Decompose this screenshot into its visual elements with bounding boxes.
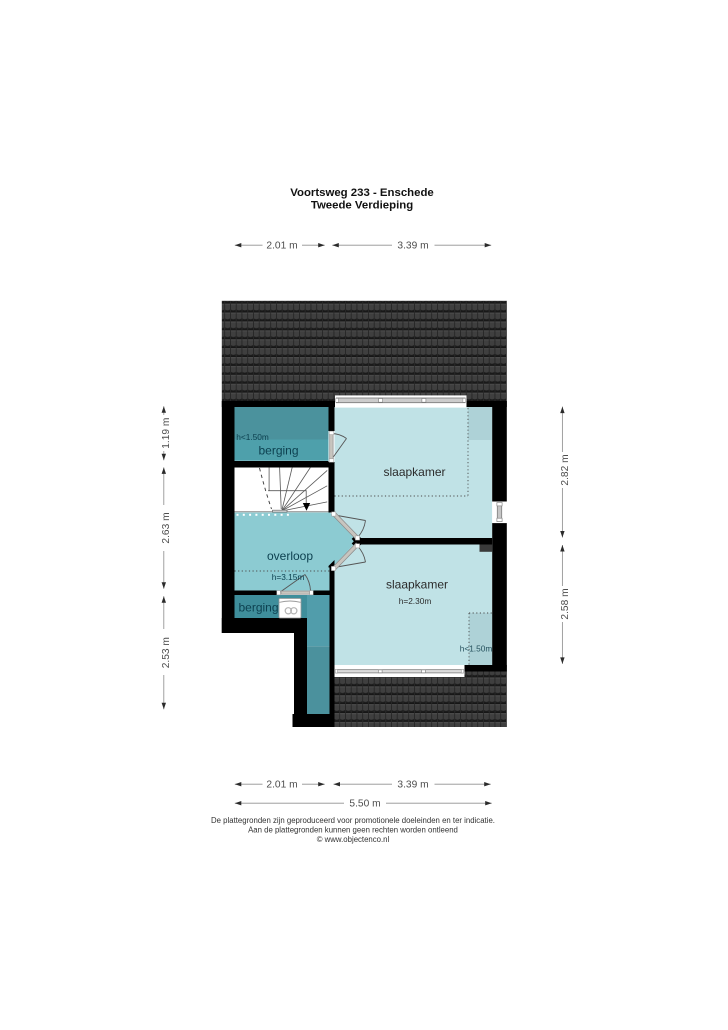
svg-text:© www.objectenco.nl: © www.objectenco.nl bbox=[317, 835, 390, 844]
svg-text:slaapkamer: slaapkamer bbox=[386, 578, 448, 592]
svg-text:3.39 m: 3.39 m bbox=[397, 779, 428, 790]
svg-text:5.50 m: 5.50 m bbox=[349, 798, 380, 809]
svg-text:slaapkamer: slaapkamer bbox=[383, 465, 445, 479]
svg-text:Aan de plattegronden kunnen ge: Aan de plattegronden kunnen geen rechten… bbox=[248, 826, 458, 835]
svg-text:2.58 m: 2.58 m bbox=[560, 588, 571, 619]
svg-text:De plattegronden zijn geproduc: De plattegronden zijn geproduceerd voor … bbox=[211, 816, 495, 825]
svg-text:Voortsweg 233 - Enschede: Voortsweg 233 - Enschede bbox=[290, 187, 433, 199]
svg-text:2.01 m: 2.01 m bbox=[266, 779, 297, 790]
svg-text:h<1.50m: h<1.50m bbox=[460, 644, 493, 654]
svg-text:h=2.30m: h=2.30m bbox=[399, 596, 432, 606]
svg-text:h<1.50m: h<1.50m bbox=[236, 432, 269, 442]
svg-text:h=3.15m: h=3.15m bbox=[272, 572, 305, 582]
svg-text:2.01 m: 2.01 m bbox=[266, 240, 297, 251]
svg-text:2.63 m: 2.63 m bbox=[161, 512, 172, 543]
svg-text:2.82 m: 2.82 m bbox=[560, 454, 571, 485]
svg-text:1.19 m: 1.19 m bbox=[161, 418, 172, 449]
svg-text:3.39 m: 3.39 m bbox=[397, 240, 428, 251]
svg-text:2.53 m: 2.53 m bbox=[161, 637, 172, 668]
svg-text:overloop: overloop bbox=[267, 549, 313, 563]
svg-text:berging: berging bbox=[258, 444, 298, 458]
svg-text:berging: berging bbox=[238, 601, 278, 615]
svg-text:Tweede Verdieping: Tweede Verdieping bbox=[311, 199, 413, 211]
